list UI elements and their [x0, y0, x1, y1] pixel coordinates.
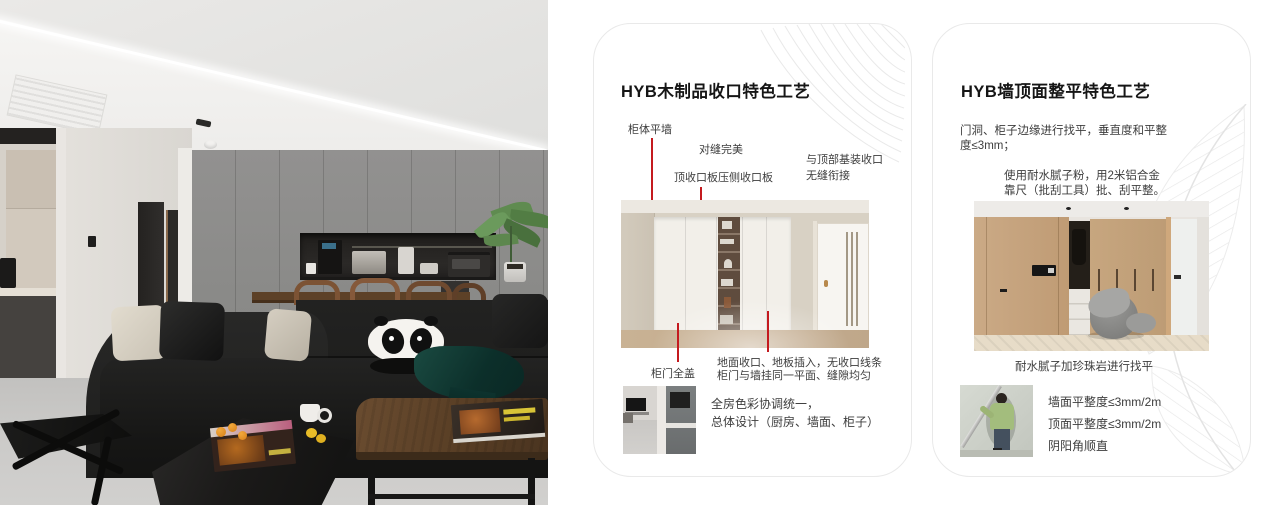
- magazine-2-title: [503, 407, 535, 414]
- hanging-clothes: [1072, 229, 1086, 265]
- niche-mug: [306, 263, 316, 274]
- card1-title: HYB木制品收口特色工艺: [621, 78, 810, 102]
- metric-wall: 墙面平整度≤3mm/2m: [1048, 391, 1161, 413]
- shelf-item: [721, 279, 733, 286]
- thumb-counter: [666, 423, 696, 428]
- hall-downlight: [1066, 207, 1071, 210]
- para1-line-1: 门洞、柜子边缘进行找平，垂直度和平整: [960, 122, 1167, 138]
- white-door-handle: [1174, 275, 1181, 279]
- light-reflection: [651, 300, 851, 348]
- plant-soil: [507, 264, 523, 269]
- door-stripe: [856, 232, 858, 326]
- hallway-photo: [974, 201, 1209, 351]
- shelf-item: [724, 259, 732, 268]
- pouf: [1126, 313, 1156, 333]
- thumb-pillar: [657, 386, 666, 454]
- kitchen-appliance: [0, 258, 16, 288]
- callout-floor-join-2: 柜门与墙挂同一平面、缝隙均匀: [717, 367, 871, 383]
- wood-seam: [1058, 217, 1059, 337]
- shelf-item: [720, 239, 734, 244]
- kitchen-upper-cabinet: [6, 150, 58, 209]
- callout-perfect-seam: 对缝完美: [699, 141, 743, 157]
- mug-handle: [317, 408, 332, 423]
- image-caption: 耐水腻子加珍珠岩进行找平: [1015, 358, 1153, 374]
- magazine-2: [451, 399, 545, 443]
- hall-downlight: [1124, 207, 1129, 210]
- callout-cabinet-flush: 柜体平墙: [628, 121, 672, 137]
- pillow-black: [159, 301, 225, 361]
- kitchen-thumbnail: [623, 386, 696, 454]
- metrics-list: 墙面平整度≤3mm/2m 顶面平整度≤3mm/2m 阴阳角顺直: [1048, 391, 1161, 457]
- handle-slot: [1098, 269, 1100, 291]
- wood-seam: [986, 217, 987, 337]
- kitchen-doorway-header: [0, 128, 58, 144]
- callout-top-board: 顶收口板压侧收口板: [674, 169, 773, 185]
- door-knob: [824, 280, 828, 287]
- metric-corners: 阴阳角顺直: [1048, 435, 1161, 457]
- potted-plant: [462, 204, 548, 284]
- orange-fruit: [238, 431, 247, 440]
- lemon: [316, 434, 326, 443]
- light-switch: [88, 236, 96, 247]
- table-crossbar: [368, 494, 535, 499]
- orange-fruit: [216, 427, 226, 437]
- handle-slot: [1152, 269, 1154, 291]
- worker-floor: [960, 450, 1033, 457]
- pillow-beige-2: [264, 308, 312, 362]
- espresso-machine: [352, 251, 386, 274]
- hall-door-handle: [1000, 289, 1007, 292]
- worker-photo: [960, 385, 1033, 457]
- wood-table-edge: [356, 452, 548, 460]
- callout-full-cover: 柜门全盖: [651, 365, 695, 381]
- ceiling-sensor: [204, 140, 217, 149]
- capsule-machine: [398, 247, 414, 274]
- callout-ceiling-joint-1: 与顶部基装收口: [806, 151, 883, 167]
- closet-drawers: [1069, 289, 1090, 335]
- thumb-sofa: [623, 413, 633, 423]
- leader-line: [767, 311, 769, 352]
- panda-ear: [424, 316, 438, 326]
- hall-end-wall: [1197, 217, 1209, 335]
- thumb-appliance: [670, 392, 690, 408]
- para1-line-2: 度≤3mm；: [960, 137, 1015, 153]
- hall-wood-door: [974, 217, 1069, 337]
- kitchen-door-jamb: [56, 128, 66, 390]
- magazine-2-cover: [459, 408, 501, 435]
- cup-stack: [420, 263, 438, 274]
- door-stripe: [851, 232, 853, 326]
- metric-ceiling: 顶面平整度≤3mm/2m: [1048, 413, 1161, 435]
- panda-eye: [417, 336, 422, 341]
- thumb-tv: [626, 398, 646, 411]
- hall-ceiling: [974, 201, 1209, 217]
- plant-stem: [510, 226, 512, 266]
- orange-fruit: [228, 423, 237, 432]
- control-panel-display: [1048, 268, 1054, 273]
- para2-line-2: 靠尺（批刮工具）批、刮平整。: [1004, 182, 1165, 198]
- para2-line-1: 使用耐水腻子粉，用2米铝合金: [1004, 167, 1160, 183]
- panda-ear: [374, 316, 388, 326]
- panda-eye: [389, 336, 394, 341]
- worker-pants: [994, 429, 1010, 450]
- render-ceiling: [621, 200, 869, 213]
- wood-coffee-table: [356, 398, 548, 505]
- page: HYB木制品收口特色工艺 柜体平墙 对缝完美 顶收口板压侧收口板 与顶部基装收口…: [0, 0, 1280, 505]
- summary-line-1: 全房色彩协调统一，: [711, 395, 819, 412]
- cabinet-render-image: [621, 200, 869, 348]
- shelf-item: [722, 221, 732, 229]
- magazine-2-subtitle: [504, 416, 530, 422]
- wood-finish-card: HYB木制品收口特色工艺 柜体平墙 对缝完美 顶收口板压侧收口板 与顶部基装收口…: [593, 23, 912, 477]
- wall-leveling-card: HYB墙顶面整平特色工艺 门洞、柜子边缘进行找平，垂直度和平整 度≤3mm； 使…: [932, 23, 1251, 477]
- callout-ceiling-joint-2: 无缝衔接: [806, 167, 850, 183]
- handle-slot: [1134, 269, 1136, 291]
- kitchen-counter: [0, 288, 58, 296]
- render-left-wall: [621, 213, 655, 330]
- thumb-floor: [623, 420, 657, 454]
- magazine-title: [269, 448, 291, 455]
- leader-line: [677, 323, 679, 362]
- coffee-machine-screen: [322, 243, 336, 249]
- living-room-photo: [0, 0, 548, 505]
- kitchen-base-cabinet: [0, 296, 58, 384]
- pillow-dark: [492, 294, 548, 348]
- card2-title: HYB墙顶面整平特色工艺: [961, 78, 1150, 102]
- summary-line-2: 总体设计（厨房、墙面、柜子）: [711, 413, 879, 430]
